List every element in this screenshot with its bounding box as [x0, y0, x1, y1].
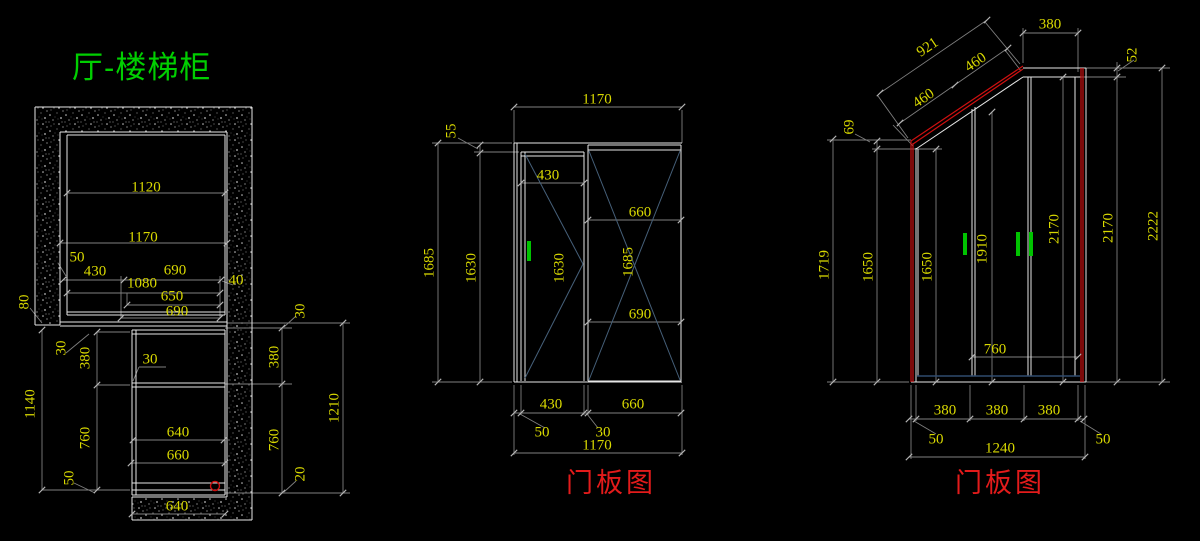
dim-label: 30 [53, 341, 69, 356]
dim-label: 40 [229, 272, 244, 288]
right-view-caption: 门板图 [940, 461, 1060, 500]
dim-label: 1170 [582, 91, 611, 107]
dim-label: 690 [629, 306, 652, 322]
dim-label: 430 [540, 396, 563, 412]
dim-label: 50 [70, 249, 85, 265]
dim-label: 380 [266, 346, 282, 369]
dim-label: 1630 [463, 253, 479, 283]
door-handle [1016, 232, 1020, 256]
dim-label: 650 [161, 288, 184, 304]
plan-wall-hatch [35, 107, 252, 520]
dim-label: 1650 [860, 252, 876, 282]
dim-label: 30 [143, 351, 158, 367]
dim-label: 1685 [620, 247, 636, 277]
dim-label: 921 [914, 35, 942, 61]
dim-label: 380 [1038, 402, 1061, 418]
dim-label: 50 [61, 471, 77, 486]
dim-label: 460 [910, 86, 938, 112]
dim-label: 430 [84, 263, 107, 279]
dim-label: 640 [166, 498, 189, 514]
dim-label: 660 [167, 447, 190, 463]
object-lines [35, 68, 1086, 520]
dim-label: 1630 [551, 253, 567, 283]
dim-label: 760 [266, 429, 282, 452]
dim-label: 52 [1124, 48, 1140, 63]
dim-label: 55 [443, 124, 459, 139]
door-handles [527, 232, 1033, 261]
dim-label: 1719 [816, 250, 832, 280]
drawing-title: 厅-楼梯柜 [72, 42, 211, 87]
dim-label: 2170 [1100, 213, 1116, 243]
dim-label: 380 [934, 402, 957, 418]
dim-label: 2222 [1145, 211, 1161, 241]
dim-label: 30 [292, 304, 308, 319]
dim-label: 1650 [919, 252, 935, 282]
dim-label: 690 [166, 303, 189, 319]
dim-label: 1240 [985, 440, 1015, 456]
dim-label: 50 [535, 424, 550, 440]
dim-label: 430 [537, 167, 560, 183]
dim-label: 660 [622, 396, 645, 412]
dim-label: 1170 [128, 229, 157, 245]
dim-label: 760 [984, 341, 1007, 357]
dim-label: 2170 [1046, 214, 1062, 244]
dim-label: 460 [962, 50, 990, 76]
dim-label: 1080 [127, 275, 157, 291]
dim-label: 50 [1096, 431, 1111, 447]
dim-label: 1210 [326, 393, 342, 423]
door-handle [1029, 232, 1033, 256]
dim-label: 690 [164, 262, 187, 278]
dim-label: 660 [629, 204, 652, 220]
dim-label: 20 [292, 467, 308, 482]
cad-viewport: 1120117050430690108040650690803038076050… [0, 0, 1200, 541]
dim-label: 1685 [421, 248, 437, 278]
dim-label: 1910 [974, 234, 990, 264]
door-handle [963, 233, 967, 255]
dim-label: 80 [16, 295, 32, 310]
dim-label: 1170 [582, 437, 611, 453]
dim-label: 1120 [131, 179, 160, 195]
dim-label: 1140 [22, 389, 38, 418]
dim-label: 380 [1039, 16, 1062, 32]
dim-label: 380 [77, 347, 93, 370]
red-edge-lines [211, 66, 1084, 491]
dim-label: 69 [841, 120, 857, 135]
dim-label: 50 [929, 431, 944, 447]
dim-label: 640 [167, 424, 190, 440]
dim-label: 380 [986, 402, 1009, 418]
dim-label: 760 [77, 427, 93, 450]
middle-view-caption: 门板图 [551, 461, 671, 500]
door-handle [527, 241, 531, 261]
